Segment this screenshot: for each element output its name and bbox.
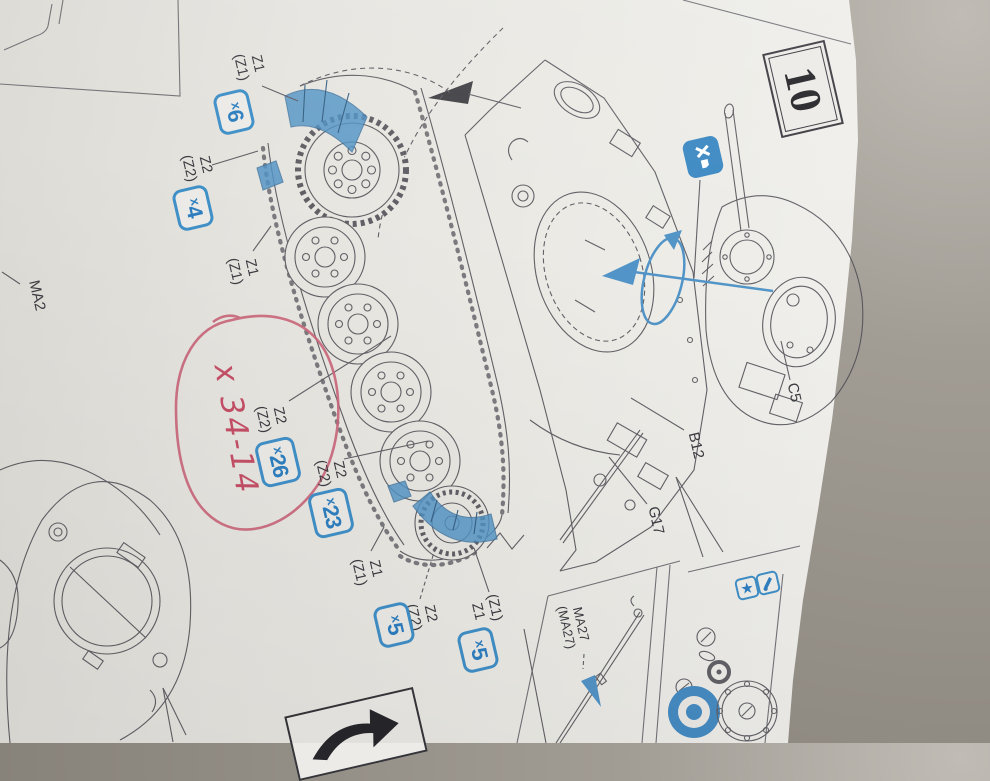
rotate-arrow bbox=[634, 230, 692, 328]
track-assembly bbox=[257, 75, 524, 565]
adjacent-step-turret-drawing bbox=[0, 460, 191, 743]
blue-arrows bbox=[581, 230, 773, 707]
line-art bbox=[0, 0, 990, 743]
decal-panel-parts bbox=[668, 628, 777, 741]
photo-of-instruction-sheet: { "step": { "number": "10" }, "callouts"… bbox=[0, 0, 990, 743]
paint-brush-glyph bbox=[758, 573, 777, 592]
roundel-part bbox=[668, 686, 720, 738]
turret-drawing bbox=[702, 103, 863, 424]
no-glue-glyph bbox=[685, 139, 721, 175]
